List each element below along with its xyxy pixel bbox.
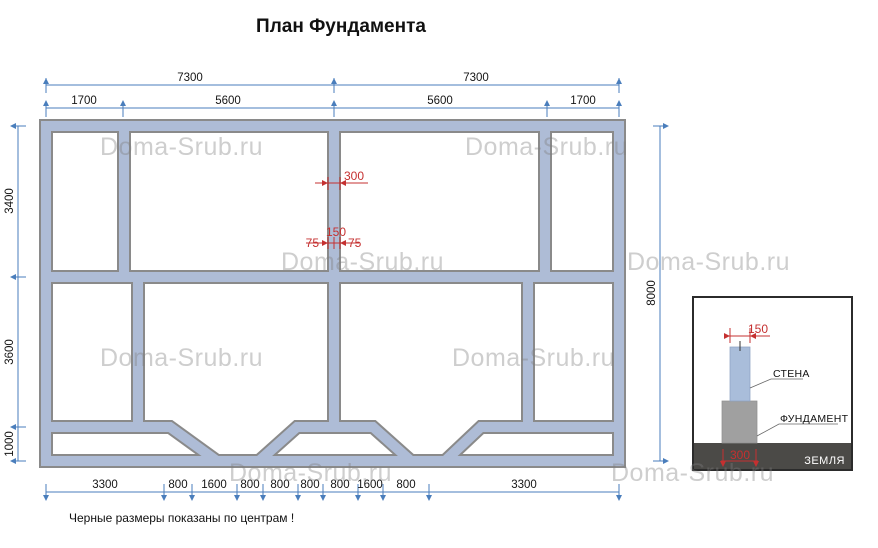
dim-bottom-3: 1600 [201,479,227,491]
dim-left-1000: 1000 [4,431,16,457]
dim-red-300: 300 [344,169,364,183]
ground-label: ЗЕМЛЯ [804,455,845,467]
dim-bottom-9: 800 [396,479,415,491]
dim-left-3400: 3400 [4,188,16,214]
plan-walls [46,126,619,461]
dimension-column-left: 3400 3600 1000 [4,123,26,464]
section-detail-view: 150 СТЕНА ФУНДАМЕНТ 300 ЗЕМЛЯ [693,297,852,470]
red-dimension-wall-offsets: 150 75 75 [306,225,362,250]
dim-top-5600-right: 5600 [427,95,453,107]
wall-block [730,347,750,401]
dim-right-8000: 8000 [646,280,658,306]
dimension-row-top-segments: 1700 5600 5600 1700 [43,95,622,117]
dim-red-75-right: 75 [348,236,362,250]
dim-top-1700-right: 1700 [570,95,596,107]
dim-bottom-8: 1600 [357,479,383,491]
dim-bottom-1: 3300 [92,479,118,491]
dim-top-overall-left: 7300 [177,72,203,84]
dimension-column-right: 8000 [646,123,669,464]
dimension-row-bottom: 3300 800 1600 800 800 800 800 1600 800 3… [43,479,622,501]
dim-top-overall-right: 7300 [463,72,489,84]
detail-dim-300: 300 [730,448,750,462]
dim-bottom-6: 800 [300,479,319,491]
foundation-plan-drawing: 7300 7300 1700 5600 5600 1700 3400 3600 … [0,0,878,548]
dim-bottom-4: 800 [240,479,259,491]
page: План Фундамента 7300 7300 1700 5600 5600… [0,0,878,548]
dim-red-150: 150 [326,225,346,239]
detail-dim-150: 150 [748,322,768,336]
dim-red-75-left: 75 [306,236,320,250]
dim-top-5600-left: 5600 [215,95,241,107]
red-dimension-foundation-width: 300 [315,169,368,190]
dim-bottom-7: 800 [330,479,349,491]
dim-bottom-10: 3300 [511,479,537,491]
foundation-block [722,401,757,443]
dim-bottom-5: 800 [270,479,289,491]
dimension-row-top-overall: 7300 7300 [43,72,622,93]
dim-bottom-2: 800 [168,479,187,491]
wall-label: СТЕНА [773,368,810,380]
dim-top-1700-left: 1700 [71,95,97,107]
dim-left-3600: 3600 [4,339,16,365]
foundation-label: ФУНДАМЕНТ [780,413,849,425]
